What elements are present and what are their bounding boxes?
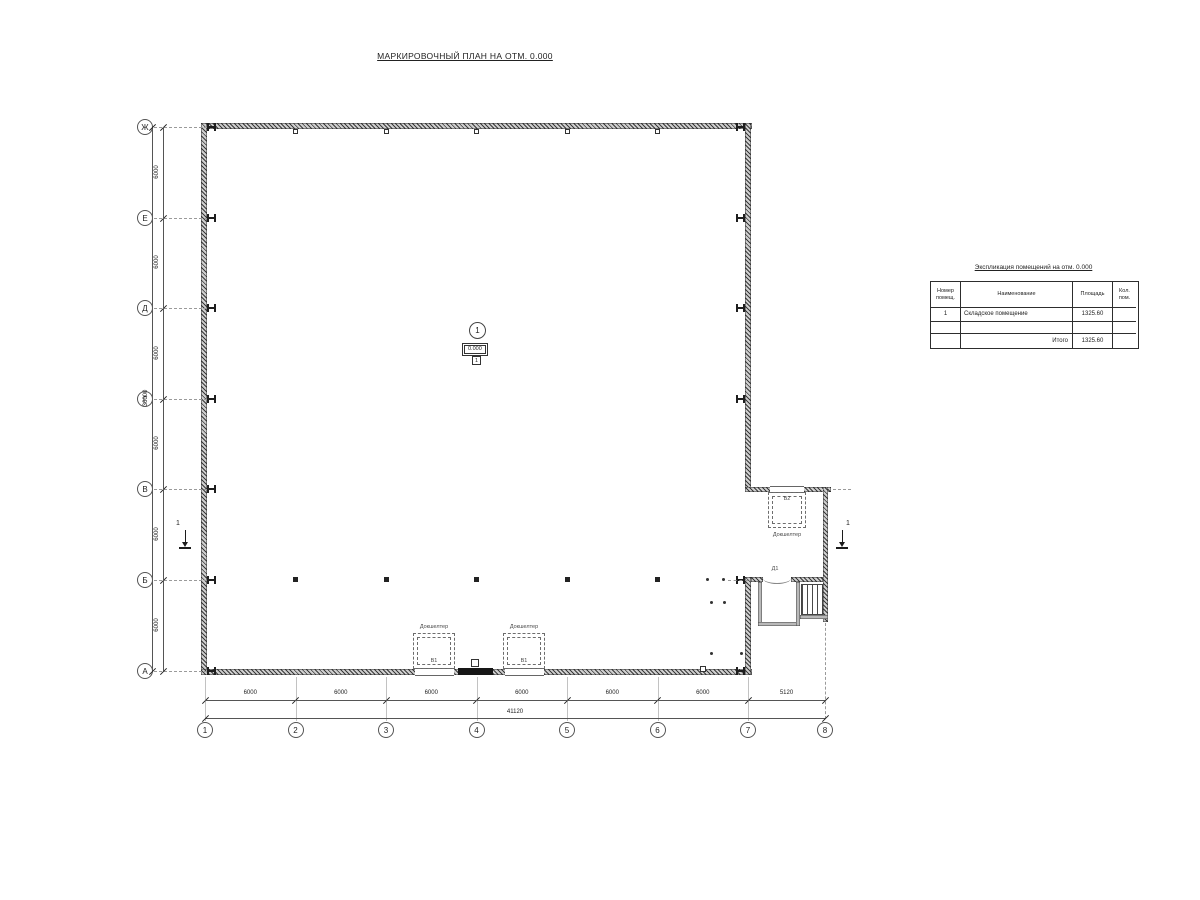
- gate-mark: [471, 659, 479, 667]
- drain-dot: [710, 652, 713, 655]
- wall-opening-mark: [700, 666, 706, 672]
- col-axis-bubble: 5: [559, 722, 575, 738]
- schedule-header: Площадь: [1073, 282, 1113, 308]
- interior-column: [565, 577, 570, 582]
- column-mark-left: [207, 576, 216, 584]
- stair-wall-bottom: [800, 615, 828, 619]
- door-mark: Д1: [760, 566, 790, 572]
- column-mark-left: [207, 667, 216, 675]
- elevation-value: 0.000: [464, 345, 486, 354]
- section-mark-right-line: [842, 530, 843, 542]
- staircase: [801, 584, 823, 615]
- schedule-cell-count: [1113, 308, 1136, 322]
- schedule-title: Экспликация помещений на отм. 0.000: [930, 264, 1137, 271]
- drain-dot: [740, 652, 743, 655]
- wall-post: [655, 129, 660, 134]
- schedule-cell-name: Складское помещение: [961, 308, 1073, 322]
- axis8-line: [825, 623, 826, 719]
- dim-line-bottom-total: [205, 718, 825, 719]
- dim-text-bottom: 6000: [411, 690, 451, 696]
- column-mark-right: [736, 304, 745, 312]
- column-mark-left: [207, 304, 216, 312]
- dock-shelter-label: Докшелтер: [404, 624, 464, 630]
- door-swing-arc: [763, 573, 791, 584]
- dock-shelter-mark: В1: [424, 658, 444, 664]
- section-mark-right-label: 1: [846, 520, 850, 527]
- interior-column: [474, 577, 479, 582]
- drain-dot: [722, 578, 725, 581]
- schedule-cell-area: 1325.60: [1073, 308, 1113, 322]
- col-axis-bubble: 1: [197, 722, 213, 738]
- column-mark-left: [207, 395, 216, 403]
- column-mark-right: [736, 214, 745, 222]
- row-axis-bubble: В: [137, 481, 153, 497]
- dim-text-left: 6000: [154, 423, 160, 463]
- dim-text-left: 6000: [154, 605, 160, 645]
- floor-plan-canvas: МАРКИРОВОЧНЫЙ ПЛАН НА ОТМ. 0.000 Д1 1 0.…: [0, 0, 1200, 900]
- wall-post: [293, 129, 298, 134]
- dock-opening-2: [505, 668, 544, 676]
- schedule-cell-num: [931, 334, 961, 348]
- wall-post: [474, 129, 479, 134]
- dim-line-left-total: [152, 127, 153, 671]
- interior-column: [384, 577, 389, 582]
- column-mark-right: [736, 667, 745, 675]
- dim-text-bottom: 6000: [321, 690, 361, 696]
- dim-text-left: 6000: [154, 152, 160, 192]
- vestibule-wall-right: [796, 582, 800, 626]
- dim-line-left-segments: [163, 127, 164, 671]
- schedule-cell-name: [961, 322, 1073, 334]
- dock-shelter-label: Докшелтер: [757, 532, 817, 538]
- schedule-cell-count: [1113, 322, 1136, 334]
- row-axis-line-stub: [728, 580, 748, 581]
- room-schedule-table: Номер помещ.НаименованиеПлощадьКол. пом.…: [930, 281, 1139, 349]
- drawing-title: МАРКИРОВОЧНЫЙ ПЛАН НА ОТМ. 0.000: [360, 51, 570, 61]
- dim-line-bottom-segments: [205, 700, 825, 701]
- schedule-cell-num: [931, 322, 961, 334]
- drain-dot: [710, 601, 713, 604]
- schedule-cell-area: [1073, 322, 1113, 334]
- wall-right-upper: [745, 123, 751, 489]
- dim-text-left: 6000: [154, 514, 160, 554]
- dim-text-bottom: 6000: [502, 690, 542, 696]
- dim-text-bottom-total: 41120: [490, 709, 540, 715]
- section-mark-right-bar: [836, 547, 848, 549]
- schedule-cell-name: Итого: [961, 334, 1073, 348]
- dim-text-bottom: 6000: [230, 690, 270, 696]
- dim-text-bottom: 6000: [592, 690, 632, 696]
- column-mark-left: [207, 214, 216, 222]
- row-axis-bubble: Б: [137, 572, 153, 588]
- wall-post: [384, 129, 389, 134]
- col-axis-bubble: 2: [288, 722, 304, 738]
- schedule-header: Номер помещ.: [931, 282, 961, 308]
- dim-text-left: 6000: [154, 333, 160, 373]
- gate: [458, 668, 493, 675]
- dock-shelter-mark: В1: [514, 658, 534, 664]
- column-mark-left: [207, 123, 216, 131]
- dim-text-bottom: 6000: [683, 690, 723, 696]
- elevation-mark: 0.000: [462, 343, 488, 356]
- schedule-cell-area: 1325.60: [1073, 334, 1113, 348]
- row-axis-line-stub: [833, 489, 851, 490]
- vestibule-wall-bottom: [758, 622, 800, 626]
- schedule-cell-num: 1: [931, 308, 961, 322]
- col-axis-bubble: 3: [378, 722, 394, 738]
- dim-text-left: 6000: [154, 242, 160, 282]
- room-number-bubble: 1: [469, 322, 486, 339]
- floor-type-mark: 1: [472, 356, 481, 365]
- interior-column: [655, 577, 660, 582]
- dock-opening-1: [415, 668, 454, 676]
- dock-shelter-mark: В2: [777, 496, 797, 502]
- dock-shelter-label: Докшелтер: [494, 624, 554, 630]
- col-axis-bubble: 6: [650, 722, 666, 738]
- schedule-cell-count: [1113, 334, 1136, 348]
- interior-column: [293, 577, 298, 582]
- section-mark-left-line: [185, 530, 186, 542]
- column-mark-left: [207, 485, 216, 493]
- schedule-header: Наименование: [961, 282, 1073, 308]
- col-axis-bubble: 7: [740, 722, 756, 738]
- annex-wall-right: [823, 487, 828, 622]
- row-axis-bubble: Е: [137, 210, 153, 226]
- wall-post: [565, 129, 570, 134]
- wall-right-lower: [745, 577, 751, 675]
- dim-text-left-total: 36000: [143, 378, 149, 418]
- col-axis-bubble: 4: [469, 722, 485, 738]
- section-mark-left-label: 1: [176, 520, 180, 527]
- drain-dot: [706, 578, 709, 581]
- section-mark-left-bar: [179, 547, 191, 549]
- dim-text-bottom: 5120: [767, 690, 807, 696]
- column-mark-right: [736, 123, 745, 131]
- col-axis-bubble: 8: [817, 722, 833, 738]
- vestibule-wall-left: [758, 582, 762, 626]
- row-axis-bubble: Д: [137, 300, 153, 316]
- drain-dot: [723, 601, 726, 604]
- schedule-header: Кол. пом.: [1113, 282, 1136, 308]
- column-mark-right: [736, 395, 745, 403]
